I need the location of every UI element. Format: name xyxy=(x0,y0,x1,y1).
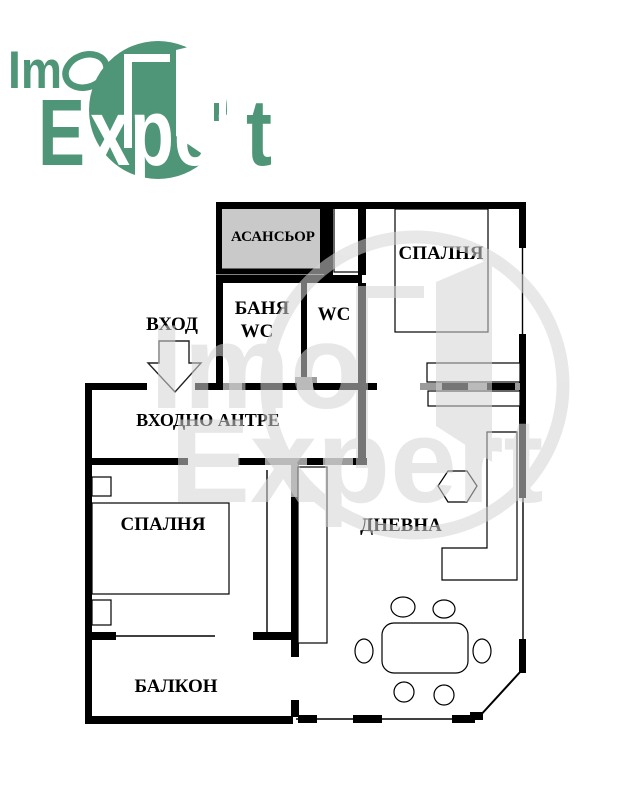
chair xyxy=(394,682,414,702)
chair xyxy=(391,597,415,617)
floor-plan-image: Im E xper t xyxy=(0,0,633,794)
chair xyxy=(473,639,491,663)
dining-table xyxy=(382,623,468,673)
wall-left xyxy=(85,383,92,724)
wall-segment xyxy=(253,632,298,640)
wall-segment xyxy=(90,632,116,640)
chair xyxy=(355,639,373,663)
wall-balcony-right xyxy=(291,700,299,717)
wall-segment xyxy=(452,715,475,723)
chair xyxy=(434,685,454,705)
wall-under-elevator xyxy=(216,275,362,283)
watermark-word2: Expert xyxy=(170,394,543,528)
nightstand xyxy=(92,600,111,625)
wall-balcony-bottom xyxy=(88,716,293,724)
wall-top xyxy=(216,202,526,209)
chair xyxy=(433,600,455,618)
wall-right xyxy=(519,639,526,673)
wall-segment xyxy=(353,715,382,723)
wall-right xyxy=(519,202,526,248)
wall-segment xyxy=(85,383,147,390)
logo-word-expert: E xper t xyxy=(38,80,272,186)
label-balcony: БАЛКОН xyxy=(134,676,217,697)
nightstand xyxy=(92,477,111,496)
wall-diagonal xyxy=(478,671,521,718)
label-elevator: АСАНСЬОР xyxy=(231,229,315,245)
floor-plan-page: Im E xper t xyxy=(0,0,633,794)
imoexpert-logo: Im E xper t xyxy=(8,38,272,186)
wall-segment xyxy=(298,715,317,723)
